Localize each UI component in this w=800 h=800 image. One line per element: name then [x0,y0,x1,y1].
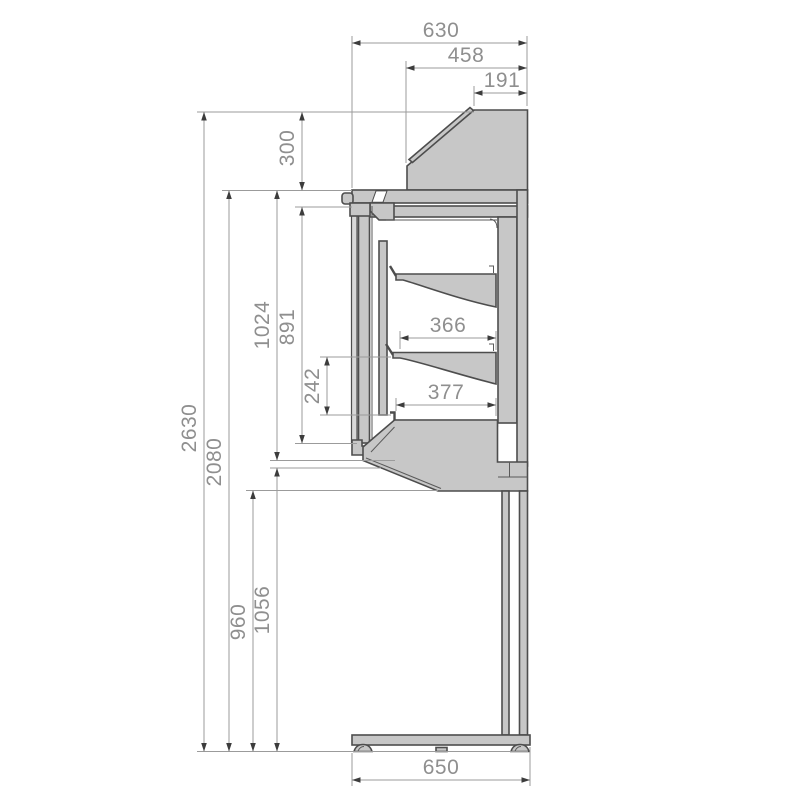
dim-1024-label: 1024 [251,301,274,350]
dim-1024: 1024 [251,191,277,461]
lower-body [363,420,528,491]
dim-377: 377 [396,381,496,416]
dim-300: 300 [276,112,302,191]
upper-shelf-wall-hook [489,266,494,273]
dim-300-label: 300 [276,130,299,167]
dim-630-label: 630 [423,19,460,42]
display-case-section [342,108,530,752]
deck-front-lip [390,413,395,421]
dim-960-label: 960 [227,604,250,641]
dim-1056-label: 1056 [251,586,274,635]
dim-377-label: 377 [428,381,465,404]
glass-top-frame-block [350,203,370,216]
dim-650: 650 [352,747,530,786]
upper-shelf [396,274,496,307]
front-glass-frame [359,205,370,443]
dim-191-label: 191 [484,69,521,92]
upper-shelf-front-lip [390,266,396,276]
base-plate [352,735,530,745]
middle-shelf [393,353,496,385]
dim-366: 366 [400,314,496,350]
dim-242-label: 242 [301,368,324,405]
rear-wall-inner-panel [498,217,517,423]
dim-366-label: 366 [430,314,467,337]
leg-rear [520,491,528,735]
dim-191: 191 [474,69,527,106]
dim-242: 242 [301,357,327,415]
dim-891: 891 [276,207,302,444]
drawing-page: 630 458 191 2630 300 [0,0,800,800]
dim-650-label: 650 [423,756,460,779]
dim-2080-label: 2080 [203,438,226,487]
dim-2630: 2630 [178,112,204,752]
dim-2630-label: 2630 [178,404,201,453]
dim-1056: 1056 [251,468,277,752]
dim-891-label: 891 [276,309,299,346]
interior-air-duct [379,241,387,415]
dim-458-label: 458 [448,44,485,67]
dim-2080: 2080 [203,191,229,752]
rear-wall-outer-panel [517,190,528,466]
front-glass-outer-pane [352,205,358,443]
leg-front [502,491,509,735]
base-center-clip [436,748,447,752]
technical-drawing-canvas: 630 458 191 2630 300 [0,0,800,800]
dim-960: 960 [227,491,253,752]
middle-shelf-wall-hook [489,344,494,351]
